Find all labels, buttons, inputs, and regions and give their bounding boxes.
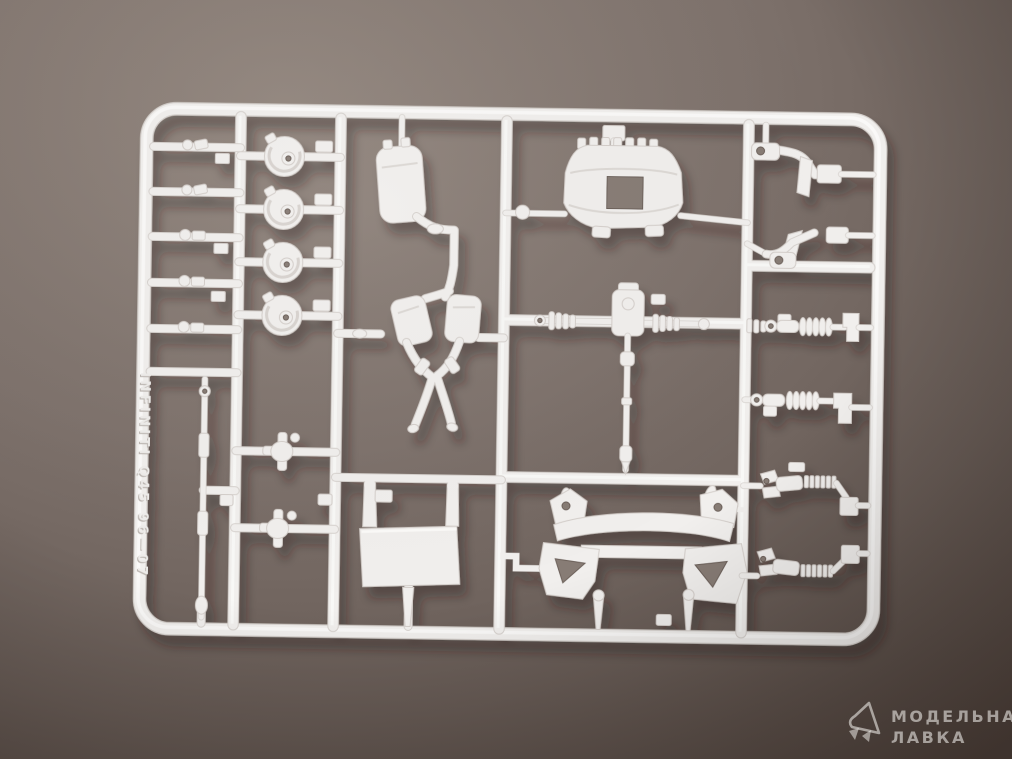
vignette-overlay xyxy=(0,0,1012,759)
watermark-line2: ЛАВКА xyxy=(891,728,967,747)
scene-svg: INFINITI Q45 96—07 INFINITI Q45 96—07 МО… xyxy=(0,0,1012,759)
photo: INFINITI Q45 96—07 INFINITI Q45 96—07 МО… xyxy=(0,0,1012,759)
watermark-line1: МОДЕЛЬНАЯ xyxy=(891,707,1012,726)
